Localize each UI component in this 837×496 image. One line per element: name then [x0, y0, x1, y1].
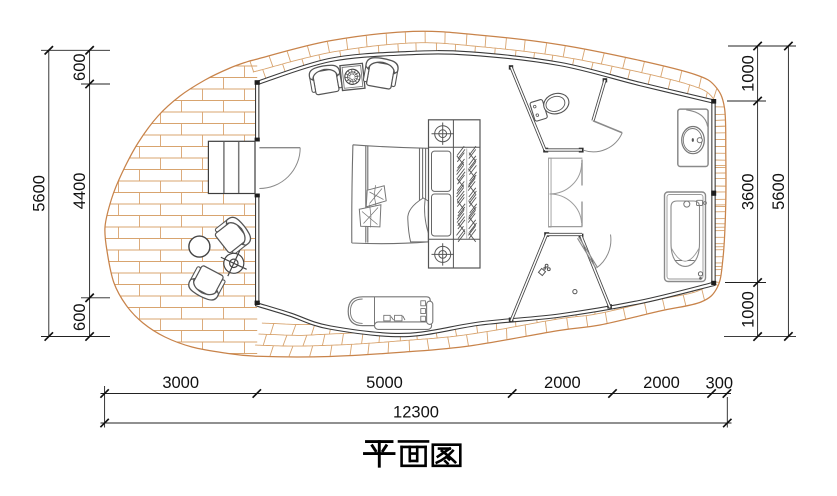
svg-text:5000: 5000 — [366, 374, 403, 392]
svg-text:5600: 5600 — [31, 175, 49, 212]
svg-text:3000: 3000 — [162, 374, 199, 392]
svg-text:1000: 1000 — [739, 55, 757, 92]
svg-text:4400: 4400 — [71, 173, 89, 210]
svg-text:300: 300 — [706, 374, 734, 392]
svg-text:600: 600 — [71, 303, 89, 331]
svg-text:12300: 12300 — [393, 403, 439, 421]
svg-text:2000: 2000 — [643, 374, 680, 392]
svg-text:1000: 1000 — [739, 291, 757, 328]
svg-text:600: 600 — [71, 53, 89, 81]
svg-text:3600: 3600 — [739, 173, 757, 210]
svg-text:2000: 2000 — [544, 374, 581, 392]
svg-text:5600: 5600 — [770, 173, 788, 210]
